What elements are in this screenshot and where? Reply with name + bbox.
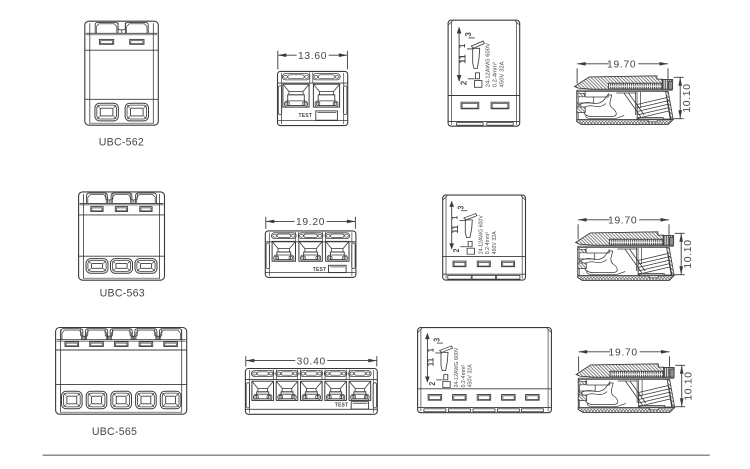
svg-text:2: 2 (452, 249, 462, 253)
svg-text:450V 32A: 450V 32A (499, 61, 505, 87)
svg-text:3: 3 (464, 31, 473, 36)
svg-text:0.2-4mm²: 0.2-4mm² (461, 365, 467, 388)
svg-text:1: 1 (450, 216, 460, 220)
svg-text:19.20: 19.20 (296, 217, 325, 228)
svg-text:10.10: 10.10 (682, 83, 693, 112)
svg-text:13.60: 13.60 (298, 51, 327, 62)
svg-text:3: 3 (432, 338, 441, 342)
svg-text:10.10: 10.10 (684, 371, 695, 400)
svg-text:11: 11 (457, 54, 467, 63)
svg-text:10.10: 10.10 (683, 239, 694, 268)
svg-text:450V 32A: 450V 32A (467, 364, 473, 388)
svg-text:TEST: TEST (313, 267, 327, 273)
svg-text:19.70: 19.70 (607, 60, 636, 71)
svg-text:450V 32A: 450V 32A (492, 231, 498, 254)
svg-text:UBC-563: UBC-563 (100, 288, 145, 300)
svg-text:TEST: TEST (335, 402, 349, 408)
svg-text:2: 2 (460, 80, 469, 85)
svg-text:24-12AWG 600V: 24-12AWG 600V (454, 347, 460, 387)
svg-text:0.2-4mm²: 0.2-4mm² (485, 232, 491, 254)
svg-text:11: 11 (425, 358, 436, 367)
svg-text:2: 2 (427, 382, 436, 386)
svg-text:19.70: 19.70 (608, 216, 637, 227)
svg-text:3: 3 (456, 206, 466, 210)
svg-text:UBC-565: UBC-565 (92, 426, 137, 438)
svg-text:24-12AWG 600V: 24-12AWG 600V (478, 215, 484, 254)
svg-text:UBC-562: UBC-562 (99, 137, 144, 149)
svg-text:TEST: TEST (299, 113, 313, 119)
svg-text:30.40: 30.40 (297, 356, 326, 367)
svg-text:24-12AWG 600V: 24-12AWG 600V (486, 43, 492, 87)
svg-text:11: 11 (450, 225, 460, 234)
svg-text:0.2-4mm²: 0.2-4mm² (493, 62, 499, 87)
svg-text:19.70: 19.70 (609, 348, 638, 359)
svg-text:1: 1 (458, 43, 467, 48)
svg-text:1: 1 (426, 348, 435, 352)
